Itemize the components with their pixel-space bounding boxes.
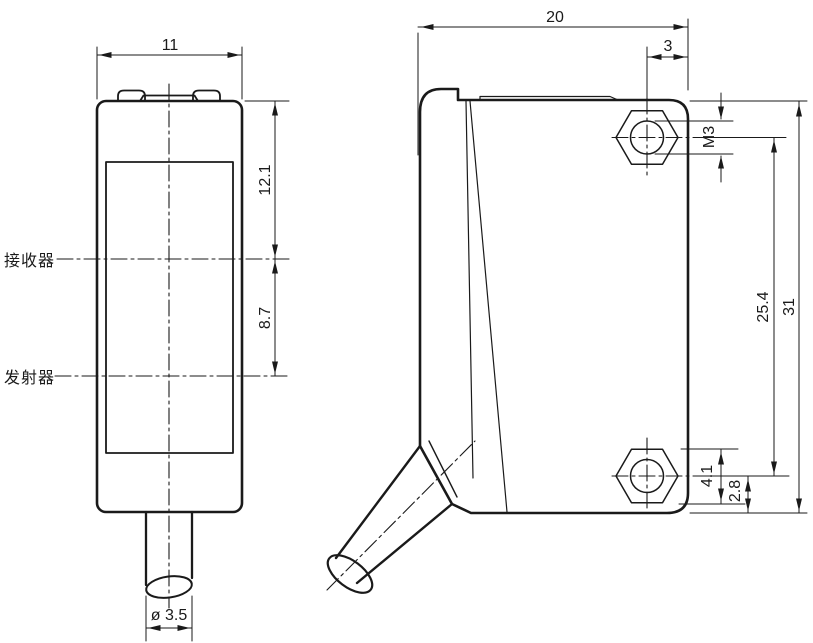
dim-front-width: 11 — [162, 37, 179, 54]
dim-emitter-spacing: 8.7 — [257, 307, 274, 329]
technical-drawing-page: 接收器 发射器 11 12.1 8.7 ø 3.5 — [0, 0, 813, 643]
dim-depth: 20 — [546, 9, 564, 26]
dim-cable-diameter: ø 3.5 — [151, 607, 188, 624]
cable-centerline — [327, 441, 475, 590]
dim-hole-to-bottom: 2.8 — [727, 480, 744, 502]
dim-hole-offset: 3 — [664, 38, 673, 55]
dim-nut-width: 4.1 — [699, 465, 716, 487]
dim-thread: M3 — [701, 126, 718, 148]
front-view: 接收器 发射器 — [4, 84, 289, 608]
receiver-label: 接收器 — [4, 251, 55, 270]
side-view-dimensions: 20 3 M3 25.4 31 4.1 2.8 — [418, 9, 807, 513]
emitter-label: 发射器 — [4, 368, 55, 387]
dim-height: 31 — [781, 298, 798, 316]
side-window-edges — [466, 101, 507, 512]
dim-hole-spacing: 25.4 — [755, 291, 772, 322]
dim-receiver-offset: 12.1 — [257, 164, 274, 195]
side-cable — [321, 441, 475, 600]
sensor-dimension-drawing: 接收器 发射器 11 12.1 8.7 ø 3.5 — [0, 0, 813, 643]
side-view — [321, 89, 700, 600]
